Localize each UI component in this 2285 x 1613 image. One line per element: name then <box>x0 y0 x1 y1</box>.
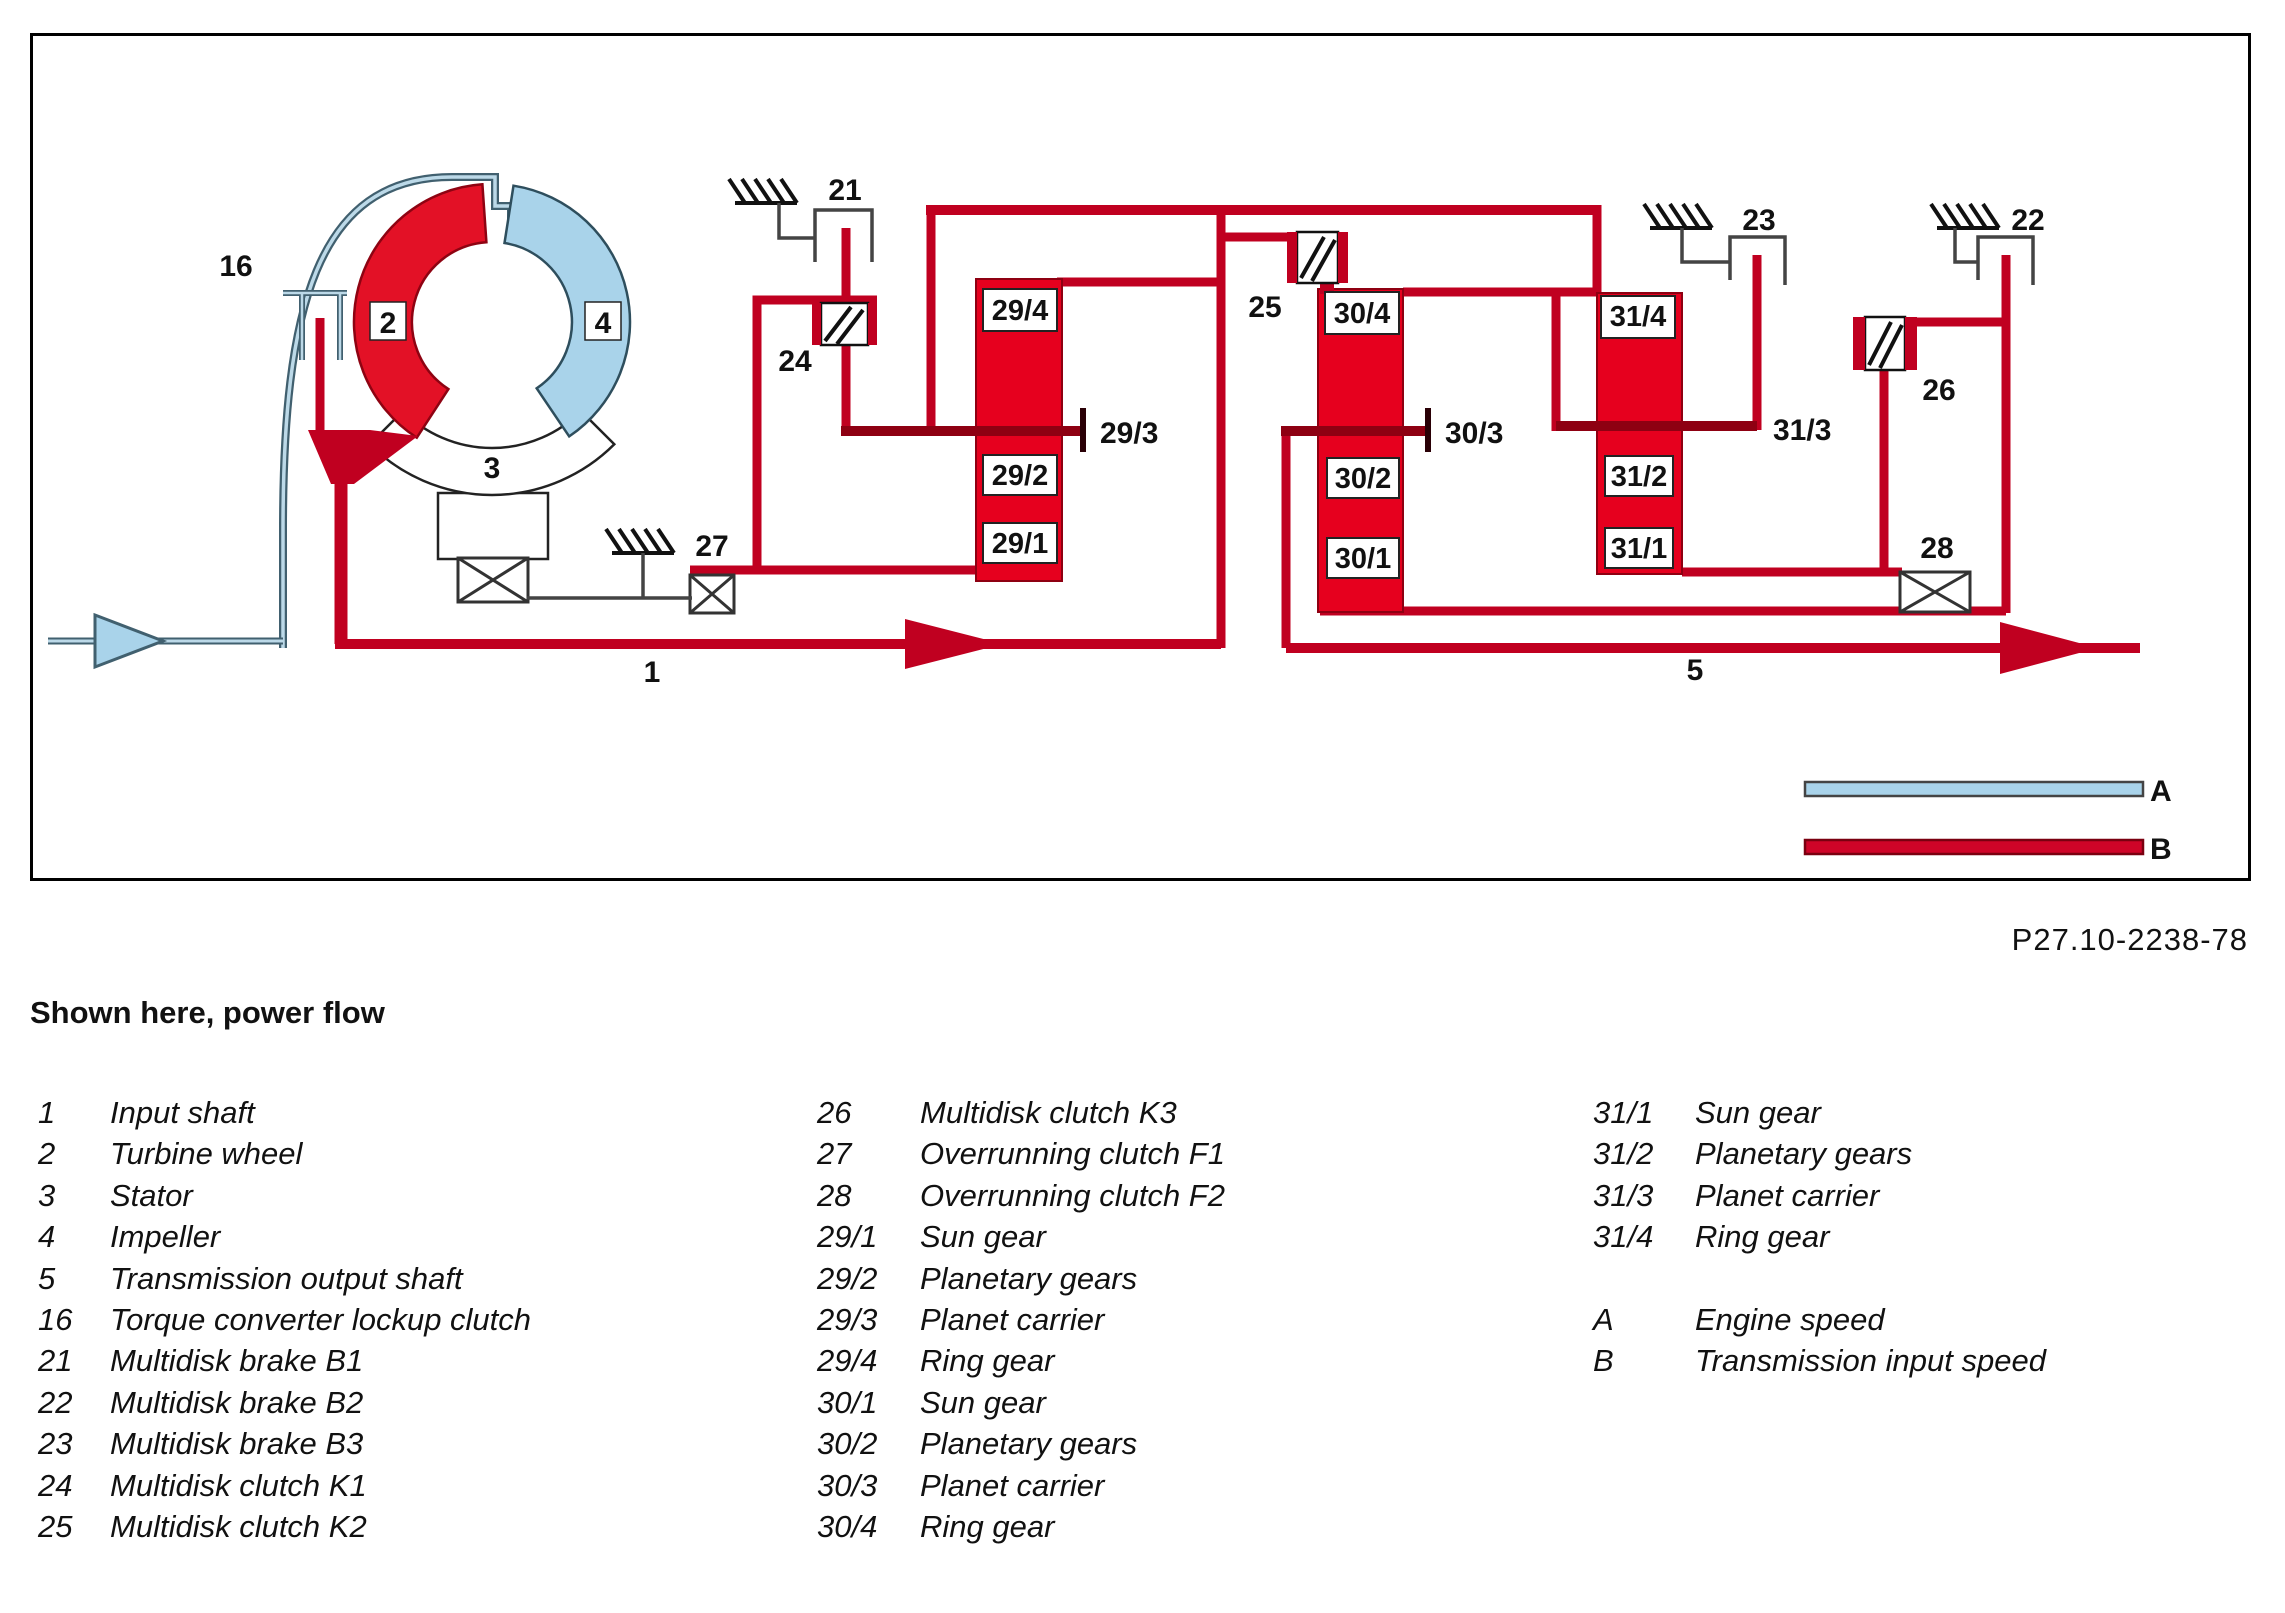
stator-oneway-clutch-icon <box>458 558 528 602</box>
label-29-4: 29/4 <box>992 295 1048 327</box>
clutch-k1 <box>812 303 877 345</box>
clutch-k2 <box>1287 232 1348 283</box>
label-5: 5 <box>1687 654 1704 687</box>
label-31-2: 31/2 <box>1611 461 1667 493</box>
carrier-29-tick-icon <box>1080 408 1086 452</box>
legend-row: 31/1Sun gear <box>1593 1092 2046 1133</box>
legend-row: 28Overrunning clutch F2 <box>817 1175 1225 1216</box>
legend-row: 29/3Planet carrier <box>817 1299 1225 1340</box>
legend-row: 16Torque converter lockup clutch <box>38 1299 531 1340</box>
label-1: 1 <box>644 656 661 689</box>
overrunning-clutch-f2-icon <box>1900 572 1970 612</box>
legend-column-1: 1Input shaft 2Turbine wheel 3Stator 4Imp… <box>38 1092 531 1547</box>
output-shaft-arrow-icon <box>2000 622 2098 674</box>
label-27: 27 <box>695 530 728 563</box>
torque-converter <box>308 184 630 644</box>
legend-row: 2Turbine wheel <box>38 1133 531 1174</box>
label-30-4: 30/4 <box>1334 298 1390 330</box>
legend-row: AEngine speed <box>1593 1299 2046 1340</box>
label-31-3: 31/3 <box>1773 414 1831 447</box>
label-30-3: 30/3 <box>1445 417 1503 450</box>
legend-row: 22Multidisk brake B2 <box>38 1382 531 1423</box>
label-2: 2 <box>380 307 397 340</box>
legend-row: 31/2Planetary gears <box>1593 1133 2046 1174</box>
stator-hub <box>438 493 548 559</box>
legend-row: 24Multidisk clutch K1 <box>38 1465 531 1506</box>
label-29-1: 29/1 <box>992 528 1048 560</box>
legend-row: 29/4Ring gear <box>817 1340 1225 1381</box>
planet-carrier-lines <box>841 426 1757 431</box>
label-28: 28 <box>1920 532 1953 565</box>
label-30-2: 30/2 <box>1335 463 1391 495</box>
label-23: 23 <box>1742 204 1775 237</box>
input-shaft-arrow-icon <box>905 619 1003 669</box>
label-21: 21 <box>828 174 861 207</box>
caption: Shown here, power flow <box>30 995 385 1031</box>
label-22: 22 <box>2011 204 2044 237</box>
legend-row: 5Transmission output shaft <box>38 1258 531 1299</box>
label-29-3: 29/3 <box>1100 417 1158 450</box>
legend-column-2: 26Multidisk clutch K3 27Overrunning clut… <box>817 1092 1225 1547</box>
legend-row: 4Impeller <box>38 1216 531 1257</box>
legend-row: 30/2Planetary gears <box>817 1423 1225 1464</box>
legend-row: 30/1Sun gear <box>817 1382 1225 1423</box>
powerflow-diagram: 16 21 24 25 27 23 22 26 28 1 5 2 4 3 29/… <box>30 33 2251 881</box>
label-31-1: 31/1 <box>1611 533 1667 565</box>
legend-row: 31/4Ring gear <box>1593 1216 2046 1257</box>
clutch-k3 <box>1853 317 1917 370</box>
page: 16 21 24 25 27 23 22 26 28 1 5 2 4 3 29/… <box>0 0 2285 1613</box>
legend-row: 26Multidisk clutch K3 <box>817 1092 1225 1133</box>
label-25: 25 <box>1248 291 1281 324</box>
legend-row: 29/1Sun gear <box>817 1216 1225 1257</box>
label-26: 26 <box>1922 374 1955 407</box>
legend-row: 31/3Planet carrier <box>1593 1175 2046 1216</box>
label-3: 3 <box>484 452 501 485</box>
label-29-2: 29/2 <box>992 460 1048 492</box>
legend-bar-engine-speed <box>1805 782 2143 796</box>
legend-row: 23Multidisk brake B3 <box>38 1423 531 1464</box>
legend-row-spacer <box>1593 1258 2046 1299</box>
legend-row: 30/3Planet carrier <box>817 1465 1225 1506</box>
legend-column-3: 31/1Sun gear 31/2Planetary gears 31/3Pla… <box>1593 1092 2046 1382</box>
legend-row: 27Overrunning clutch F1 <box>817 1133 1225 1174</box>
figure-code: P27.10-2238-78 <box>2012 922 2248 958</box>
legend-row: BTransmission input speed <box>1593 1340 2046 1381</box>
label-16: 16 <box>219 250 252 283</box>
ground-b3-icon <box>1644 204 1712 228</box>
ground-b1-icon <box>729 179 797 203</box>
input-arrow-icon <box>95 615 163 667</box>
ground-stator-icon <box>606 529 674 553</box>
legend-row: 1Input shaft <box>38 1092 531 1133</box>
label-B: B <box>2150 833 2172 866</box>
label-A: A <box>2150 775 2172 808</box>
label-24: 24 <box>778 345 812 378</box>
legend-row: 29/2Planetary gears <box>817 1258 1225 1299</box>
label-31-4: 31/4 <box>1610 301 1666 333</box>
ground-b2-icon <box>1931 204 1999 228</box>
legend-row: 30/4Ring gear <box>817 1506 1225 1547</box>
turbine-shaft <box>316 318 325 436</box>
carrier-30-tick-icon <box>1425 408 1431 452</box>
overrunning-clutch-f1-icon <box>690 575 734 613</box>
label-4: 4 <box>595 307 612 340</box>
legend-row: 3Stator <box>38 1175 531 1216</box>
legend-row: 21Multidisk brake B1 <box>38 1340 531 1381</box>
legend-row: 25Multidisk clutch K2 <box>38 1506 531 1547</box>
legend-bar-input-speed <box>1805 840 2143 854</box>
label-30-1: 30/1 <box>1335 543 1391 575</box>
